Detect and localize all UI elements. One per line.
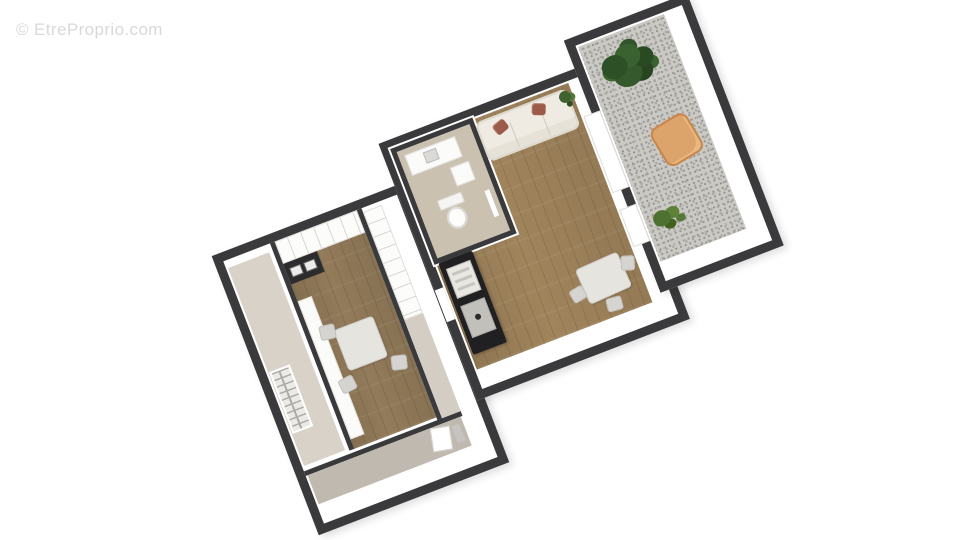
floor-plan <box>185 0 799 522</box>
kitchenette-sink <box>446 260 482 299</box>
sofa-pillow <box>491 118 509 136</box>
sofa-pillow <box>532 103 546 115</box>
floorplan-image: © EtreProprio.com <box>0 0 960 540</box>
cooktop <box>460 297 496 338</box>
sofa-seam <box>510 122 520 147</box>
washer <box>450 161 476 187</box>
balcony-door <box>430 426 454 453</box>
oven-icon <box>290 265 302 276</box>
dining-chair <box>620 255 635 271</box>
kitchen-chair <box>390 354 408 371</box>
burner-icon <box>474 313 482 321</box>
bathroom-door-opening <box>484 189 499 217</box>
microwave-icon <box>304 260 316 271</box>
watermark: © EtreProprio.com <box>16 20 163 40</box>
